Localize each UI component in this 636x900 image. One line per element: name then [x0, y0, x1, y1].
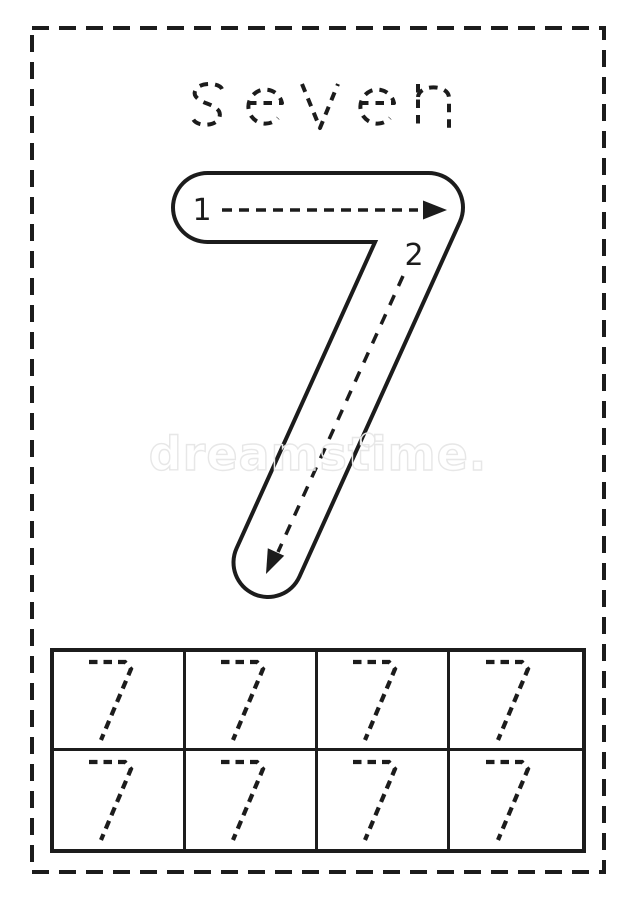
practice-cell [450, 652, 582, 751]
traced-letter-e [360, 90, 394, 124]
dashed-numeral-7 [85, 756, 141, 844]
dashed-numeral-7 [85, 656, 141, 744]
watermark-text: dreamstime. [149, 427, 488, 481]
worksheet-page: { "worksheet": { "word": "seven", "lette… [0, 0, 636, 900]
numeral-7-tracing-figure: 1 2 [150, 140, 500, 630]
traced-letter-e [248, 90, 282, 124]
dashed-numeral-7 [349, 756, 405, 844]
practice-cell [54, 751, 186, 850]
word-letters-group [193, 84, 449, 128]
dashed-numeral-7 [482, 756, 538, 844]
stroke1-number: 1 [192, 193, 211, 228]
practice-cell [318, 751, 450, 850]
traced-letter-n [418, 84, 449, 128]
dashed-numeral-7 [217, 756, 273, 844]
traced-word-seven [159, 76, 499, 140]
stroke2-number: 2 [404, 238, 423, 273]
traced-letter-v [302, 84, 338, 128]
watermark-layer: dreamstime. [0, 420, 636, 490]
dashed-numeral-7 [482, 656, 538, 744]
practice-grid [50, 648, 586, 853]
dashed-numeral-7 [349, 656, 405, 744]
practice-cell [54, 652, 186, 751]
dashed-numeral-7 [217, 656, 273, 744]
practice-cell [450, 751, 582, 850]
practice-cell [186, 652, 318, 751]
practice-cell [186, 751, 318, 850]
practice-cell [318, 652, 450, 751]
traced-letter-s [193, 84, 222, 125]
numeral-7-inner-fill [208, 208, 429, 563]
